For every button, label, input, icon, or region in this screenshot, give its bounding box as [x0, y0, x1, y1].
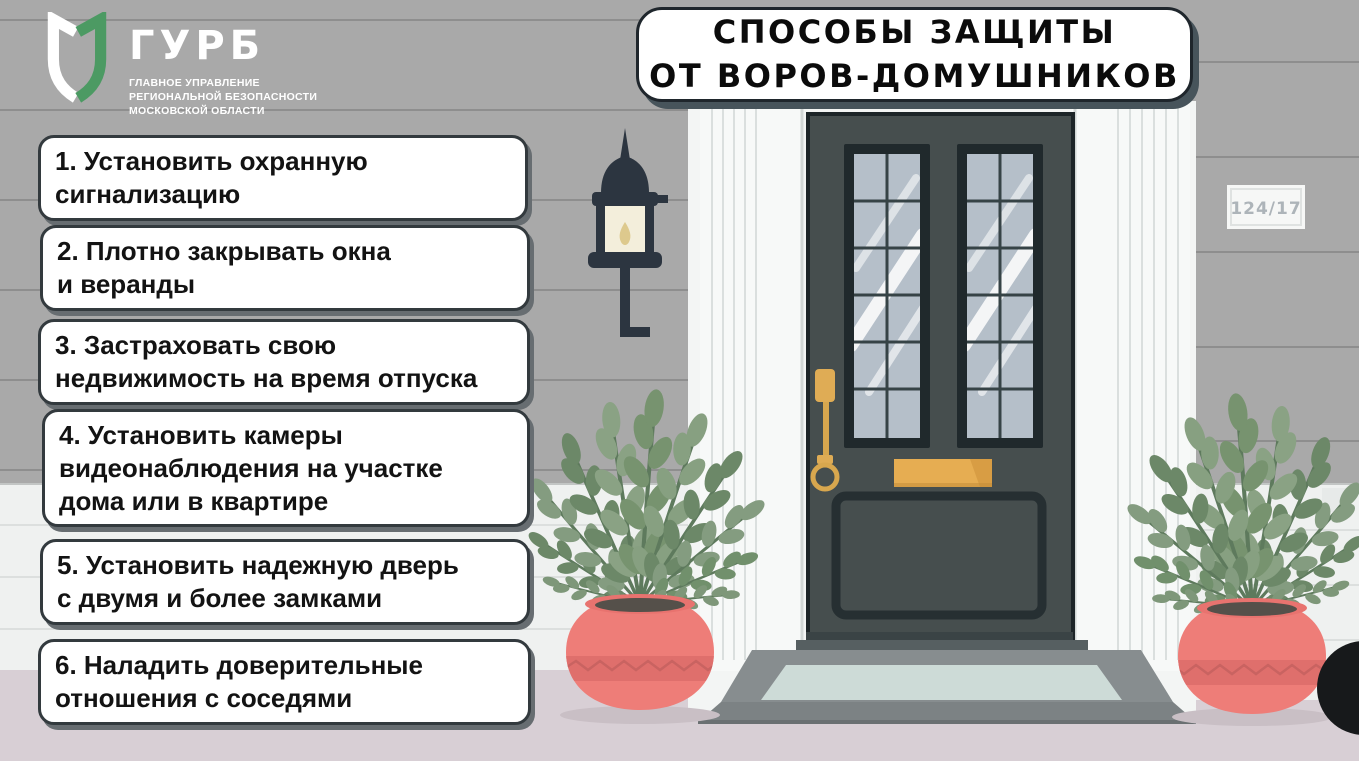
tip-card-6: 6. Наладить доверительные отношения с со… — [38, 639, 531, 725]
logo-text: ГУРБ ГЛАВНОЕ УПРАВЛЕНИЕ РЕГИОНАЛЬНОЙ БЕЗ… — [129, 12, 317, 118]
door-window-left — [844, 144, 930, 448]
mail-slot — [894, 459, 992, 487]
front-door — [808, 114, 1073, 642]
logo-department-line1: ГЛАВНОЕ УПРАВЛЕНИЕ — [129, 76, 317, 90]
doormat — [761, 665, 1122, 700]
door-window-right — [957, 144, 1043, 448]
gurb-logo: ГУРБ ГЛАВНОЕ УПРАВЛЕНИЕ РЕГИОНАЛЬНОЙ БЕЗ… — [38, 12, 317, 118]
logo-shield-icon — [38, 12, 116, 104]
porch-column-left — [700, 101, 804, 671]
tip-card-1: 1. Установить охранную сигнализацию — [38, 135, 528, 221]
house-number-plate: 124/17 — [1227, 185, 1305, 229]
tip-card-2: 2. Плотно закрывать окна и веранды — [40, 225, 530, 311]
tip-card-4: 4. Установить камеры видеонаблюдения на … — [42, 409, 530, 527]
logo-department-line3: МОСКОВСКОЙ ОБЛАСТИ — [129, 104, 317, 118]
logo-acronym: ГУРБ — [129, 26, 317, 66]
logo-department: ГЛАВНОЕ УПРАВЛЕНИЕ РЕГИОНАЛЬНОЙ БЕЗОПАСН… — [129, 76, 317, 118]
page-title: СПОСОБЫ ЗАЩИТЫ ОТ ВОРОВ-ДОМУШНИКОВ — [636, 7, 1193, 102]
tip-card-3: 3. Застраховать свою недвижимость на вре… — [38, 319, 530, 405]
tip-card-5: 5. Установить надежную дверь с двумя и б… — [40, 539, 530, 625]
porch-column-right — [1072, 101, 1190, 671]
svg-text:124/17: 124/17 — [1230, 199, 1301, 219]
logo-department-line2: РЕГИОНАЛЬНОЙ БЕЗОПАСНОСТИ — [129, 90, 317, 104]
infographic-page: { "header": { "logo": { "acronym": "ГУРБ… — [0, 0, 1359, 761]
